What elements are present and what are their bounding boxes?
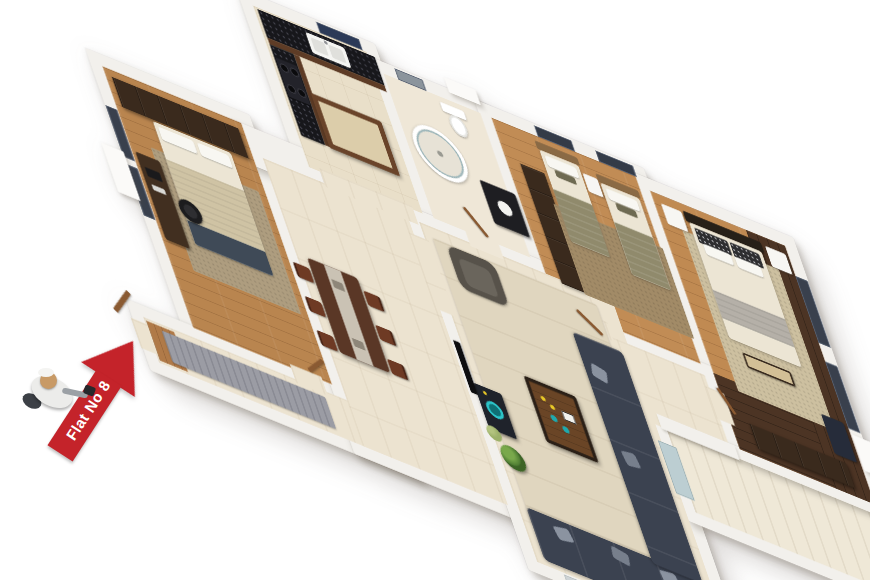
laptop-icon — [145, 167, 163, 183]
drain-icon — [436, 150, 444, 158]
speaker-icon — [484, 398, 507, 422]
person-cap — [38, 368, 54, 377]
flat-8-floor-plan — [0, 0, 870, 580]
sofa-pillow4 — [591, 362, 608, 384]
sofa-pillow — [552, 526, 574, 543]
floor-plan-scene: Flat No 8 — [0, 0, 870, 580]
console-dot — [482, 390, 487, 395]
keyboard-icon — [151, 184, 166, 195]
sofa-pillow2 — [611, 545, 631, 567]
vanity-basin-icon — [496, 198, 515, 218]
sofa-pillow5 — [620, 450, 641, 468]
person-figure-icon — [18, 360, 118, 430]
